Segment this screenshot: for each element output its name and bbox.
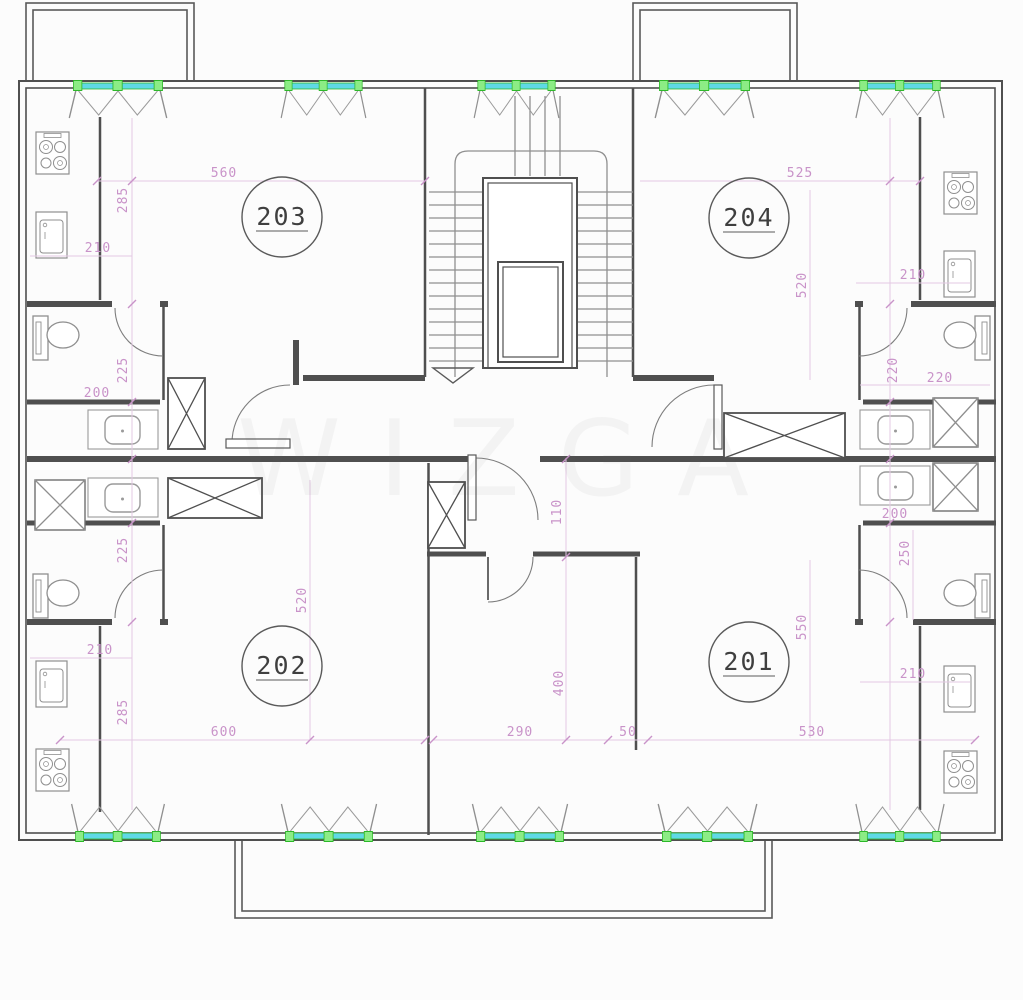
floor-plan-drawing: 560 285 210 225 200 525 520 210 220 220 … [0, 0, 1023, 1000]
stove-icon [36, 749, 69, 791]
dimension-label: 285 [116, 187, 131, 213]
stove-icon [944, 172, 977, 214]
kitchen-sink-icon [944, 666, 975, 712]
dimension-label: 550 [795, 614, 810, 640]
dimension-label: 200 [84, 386, 110, 401]
elevator-icon [483, 178, 577, 368]
dimension-label: 210 [900, 268, 926, 283]
dimension-label: 285 [116, 699, 131, 725]
stove-icon [944, 751, 977, 793]
dimension-label: 520 [295, 587, 310, 613]
vanity-sink-icon [88, 410, 158, 449]
dimension-label: 225 [116, 357, 131, 383]
stove-icon [36, 132, 69, 174]
dimension-label: 200 [882, 507, 908, 522]
window-icon [856, 81, 944, 119]
toilet-icon [944, 316, 990, 360]
dimension-label: 210 [87, 643, 113, 658]
window-icon [69, 81, 166, 119]
kitchen-sink-icon [36, 212, 67, 258]
dimension-label: 210 [900, 667, 926, 682]
vanity-sink-icon [860, 466, 930, 505]
balcony-top-left [26, 3, 194, 81]
window-icon [72, 804, 165, 842]
floor-plan-canvas: 560 285 210 225 200 525 520 210 220 220 … [0, 0, 1023, 1000]
window-icon [658, 804, 757, 842]
toilet-icon [33, 574, 79, 618]
dimension-label: 600 [211, 725, 237, 740]
dimension-label: 220 [886, 357, 901, 383]
window-icon [474, 81, 559, 119]
dimension-label: 210 [85, 241, 111, 256]
room-number-label: 203 [256, 202, 307, 231]
stair-direction-arrow [433, 368, 473, 383]
dimension-label: 50 [619, 725, 637, 740]
dimension-label: 520 [795, 272, 810, 298]
kitchen-sink-icon [944, 251, 975, 297]
window-icon [655, 81, 754, 119]
room-bubble-203: 203 [242, 177, 322, 257]
dimension-label: 525 [787, 166, 813, 181]
window-icon [472, 804, 567, 842]
balcony-bottom [235, 840, 772, 918]
dimension-label: 400 [552, 670, 567, 696]
dimension-label: 250 [898, 540, 913, 566]
watermark: WIZGA [237, 398, 787, 520]
dimension-label: 560 [211, 166, 237, 181]
window-icon [281, 804, 376, 842]
dimension-label: 220 [927, 371, 953, 386]
dimension-label: 530 [799, 725, 825, 740]
room-bubble-204: 204 [709, 178, 789, 258]
balcony-top-right [633, 3, 797, 81]
kitchen-sink-icon [36, 661, 67, 707]
toilet-icon [33, 316, 79, 360]
room-bubble-201: 201 [709, 622, 789, 702]
room-number-label: 201 [723, 647, 774, 676]
room-number-label: 204 [723, 203, 774, 232]
room-number-label: 202 [256, 651, 307, 680]
window-icon [281, 81, 366, 119]
dimension-label: 290 [507, 725, 533, 740]
window-icon [856, 804, 944, 842]
toilet-icon [944, 574, 990, 618]
dimension-label: 225 [116, 537, 131, 563]
vanity-sink-icon [88, 478, 158, 517]
vanity-sink-icon [860, 410, 930, 449]
